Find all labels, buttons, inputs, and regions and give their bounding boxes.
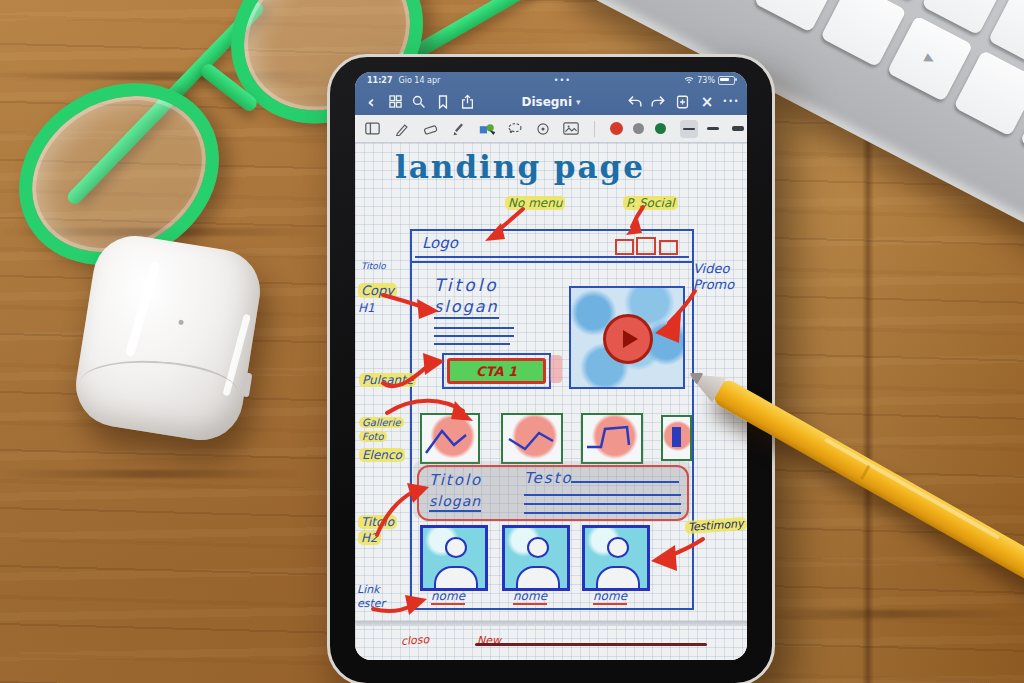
note-p-social: P. Social <box>623 196 678 210</box>
thickness-medium-button[interactable] <box>704 120 722 138</box>
note-pulsante: Pulsante <box>359 373 416 387</box>
keyboard-key <box>953 50 1024 136</box>
grid-icon <box>389 95 402 108</box>
wood-grain-line <box>0 470 300 478</box>
color-swatch-red[interactable] <box>605 118 627 140</box>
note-canvas[interactable]: landing page No menu P. Social Logo T <box>355 143 747 660</box>
wireframe-header: Logo <box>412 231 692 263</box>
chevron-down-icon: ▾ <box>576 97 581 107</box>
testimonial-card <box>420 525 488 591</box>
keyboard-key-arrow-right: ▶ <box>887 15 973 101</box>
note-elenco: Elenco <box>359 448 405 462</box>
status-bar: 11:27 Gio 14 apr ••• 73% <box>355 72 747 88</box>
note-link: Link <box>357 583 380 596</box>
pencil-highlight <box>824 438 1000 540</box>
testo-line <box>524 503 681 505</box>
sidebar-icon <box>365 122 380 135</box>
share-icon <box>461 94 474 109</box>
note-ester: ester <box>357 597 385 610</box>
hero-text-line <box>434 343 510 345</box>
back-chevron-icon: ‹ <box>367 92 374 112</box>
testo-line <box>571 481 679 483</box>
play-button-icon <box>603 314 653 364</box>
cta-label: CTA 1 <box>476 364 517 379</box>
person-avatar-head <box>527 537 549 558</box>
gallery-thumb <box>420 413 480 464</box>
thick-stroke-icon <box>732 126 744 131</box>
arrow-right-glyph: ▶ <box>924 52 937 65</box>
gray-color-dot <box>633 123 644 134</box>
thickness-thin-button[interactable] <box>680 120 698 138</box>
nav-bar: ‹ <box>355 88 747 115</box>
note-copy: Copy <box>358 283 397 298</box>
note-titolo-h2-2: H2 <box>358 531 381 545</box>
person-avatar-body <box>596 566 640 591</box>
color-swatch-green[interactable] <box>649 118 671 140</box>
text-section-outline: Titolo slogan Testo <box>417 465 689 521</box>
note-testimony: Testimony <box>685 517 747 534</box>
thickness-thick-button[interactable] <box>729 120 747 138</box>
mid-slogan: slogan <box>429 493 481 512</box>
pen-icon <box>395 122 409 136</box>
pencil-ridge <box>860 465 870 480</box>
gallery-thumb <box>501 413 563 464</box>
social-icon-box <box>615 239 634 255</box>
hero-title: Titolo <box>434 275 499 295</box>
mountain-sketch <box>583 415 641 462</box>
pointer-circle-icon <box>536 122 550 136</box>
highlighter-icon <box>452 122 466 136</box>
person-avatar-body <box>434 566 478 591</box>
sidebar-tool-button[interactable] <box>361 118 383 140</box>
testo-label: Testo <box>524 469 573 487</box>
hero-slogan: slogan <box>434 297 499 319</box>
image-icon <box>563 122 579 135</box>
note-video: Video <box>693 261 729 276</box>
eraser-tool-button[interactable] <box>419 118 441 140</box>
note-promo: Promo <box>693 277 734 292</box>
app-header: 11:27 Gio 14 apr ••• 73% ‹ <box>355 72 747 115</box>
pointer-tool-button[interactable] <box>532 118 554 140</box>
color-swatch-gray[interactable] <box>627 118 649 140</box>
testimonial-card <box>502 525 570 591</box>
lasso-tool-button[interactable] <box>504 118 526 140</box>
hero-text-line <box>434 335 514 337</box>
hero-text-line <box>434 327 514 329</box>
more-button[interactable]: ••• <box>719 91 743 113</box>
testimonial-card <box>582 525 650 591</box>
tablet-screen: 11:27 Gio 14 apr ••• 73% ‹ <box>355 72 747 660</box>
airpods-side-button <box>242 373 253 398</box>
share-button[interactable] <box>455 91 479 113</box>
page-gap <box>355 621 747 626</box>
testimonial-name: nome <box>513 589 547 605</box>
image-tool-button[interactable] <box>560 118 582 140</box>
green-color-dot <box>655 123 666 134</box>
highlighter-tool-button[interactable] <box>447 118 469 140</box>
testo-line <box>524 494 681 496</box>
person-avatar-head <box>607 537 629 558</box>
airpods-case <box>70 230 266 446</box>
toolbar-divider <box>594 121 595 137</box>
header-rule-line <box>415 256 689 258</box>
battery-percent: 73% <box>697 76 715 85</box>
note-titolo-h2-1: Titolo <box>358 515 397 529</box>
status-time: 11:27 <box>367 76 392 85</box>
undo-button[interactable] <box>623 91 647 113</box>
add-page-button[interactable] <box>671 91 695 113</box>
status-page-dots[interactable]: ••• <box>554 76 571 85</box>
red-color-dot <box>610 122 623 135</box>
airpods-led-dot <box>178 319 184 325</box>
airpods-case-highlight <box>125 260 161 357</box>
medium-stroke-icon <box>707 127 719 130</box>
lasso-icon <box>507 122 523 135</box>
social-icon-box <box>636 237 656 255</box>
add-page-icon <box>676 95 689 109</box>
status-date: Gio 14 apr <box>398 76 440 85</box>
social-icon-box <box>659 240 678 255</box>
next-page-note-left: closo <box>401 633 430 648</box>
close-icon: × <box>701 93 714 111</box>
video-promo-box <box>569 286 685 389</box>
note-titolo: Titolo <box>361 261 386 271</box>
thin-stroke-icon <box>683 128 695 130</box>
note-foto: Foto <box>359 431 387 442</box>
testimonial-name: nome <box>593 589 627 605</box>
eraser-icon <box>423 122 438 135</box>
shapes-icon <box>479 122 495 136</box>
back-button[interactable]: ‹ <box>359 91 383 113</box>
cta-button: CTA 1 <box>447 358 546 384</box>
battery-icon <box>718 76 735 85</box>
redo-icon <box>651 95 666 108</box>
wireframe-logo: Logo <box>422 234 458 252</box>
more-dots-icon: ••• <box>722 97 739 106</box>
thumbnails-button[interactable] <box>383 91 407 113</box>
person-avatar-head <box>445 537 467 558</box>
next-page-rule-line <box>475 643 707 646</box>
thumb-bar-sketch <box>672 427 681 447</box>
person-avatar-body <box>516 566 560 591</box>
mid-title: Titolo <box>429 471 482 489</box>
search-icon <box>412 95 426 109</box>
gallery-thumb <box>661 415 692 461</box>
gallery-thumb <box>581 413 643 464</box>
undo-icon <box>627 95 642 108</box>
testo-line <box>524 512 681 514</box>
pink-smear <box>550 355 562 383</box>
airpods-case-seam <box>79 356 240 419</box>
document-title: Disegni <box>521 95 572 109</box>
tablet: 11:27 Gio 14 apr ••• 73% ‹ <box>327 54 775 683</box>
shapes-tool-button[interactable] <box>476 118 498 140</box>
note-no-menu: No menu <box>505 196 565 210</box>
redo-button[interactable] <box>647 91 671 113</box>
bookmark-button[interactable] <box>431 91 455 113</box>
desk-scene: ◀ ^ control ▲ ▼ ▶ <box>0 0 1024 683</box>
arrow-p-social <box>632 207 643 227</box>
drawing-toolbar <box>355 115 747 143</box>
wifi-icon <box>684 76 694 84</box>
close-button[interactable]: × <box>695 91 719 113</box>
note-gallerie: Gallerie <box>359 417 404 428</box>
document-title-button[interactable]: Disegni ▾ <box>521 95 580 109</box>
testimonial-name: nome <box>431 589 465 605</box>
search-button[interactable] <box>407 91 431 113</box>
mountain-sketch <box>503 415 561 462</box>
bookmark-icon <box>437 95 449 109</box>
cta-button-frame: CTA 1 <box>442 353 551 389</box>
pen-tool-button[interactable] <box>391 118 413 140</box>
wood-grain-line <box>760 610 1024 618</box>
sketch-page-title: landing page <box>395 149 645 185</box>
note-h1: H1 <box>358 301 375 315</box>
mountain-sketch <box>422 415 478 462</box>
